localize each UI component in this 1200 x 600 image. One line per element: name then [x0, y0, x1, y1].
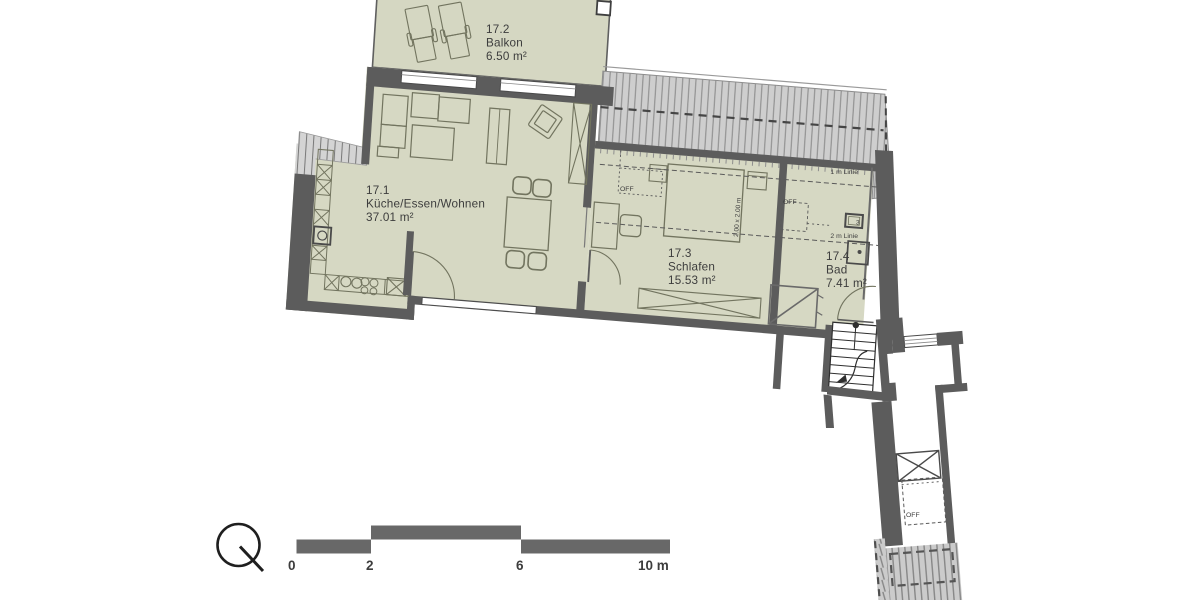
svg-text:6: 6 — [516, 558, 524, 573]
svg-text:Bad: Bad — [826, 264, 847, 277]
svg-text:Schlafen: Schlafen — [668, 261, 715, 274]
svg-text:6.50 m²: 6.50 m² — [486, 50, 527, 63]
svg-text:37.01 m²: 37.01 m² — [366, 211, 414, 224]
svg-text:10 m: 10 m — [638, 558, 669, 573]
svg-text:OFF: OFF — [783, 199, 797, 206]
svg-text:OFF: OFF — [906, 512, 920, 519]
svg-text:17.4: 17.4 — [826, 250, 850, 263]
svg-text:2: 2 — [366, 558, 374, 573]
svg-text:Balkon: Balkon — [486, 37, 523, 50]
svg-text:Küche/Essen/Wohnen: Küche/Essen/Wohnen — [366, 198, 485, 211]
svg-text:OFF: OFF — [620, 186, 634, 193]
svg-text:2 m Linie: 2 m Linie — [830, 233, 858, 240]
svg-text:17.1: 17.1 — [366, 184, 390, 197]
svg-text:7.41 m²: 7.41 m² — [826, 277, 867, 290]
svg-text:17.3: 17.3 — [668, 247, 692, 260]
svg-text:17.2: 17.2 — [486, 23, 510, 36]
svg-text:15.53 m²: 15.53 m² — [668, 274, 716, 287]
svg-text:1 m Linie: 1 m Linie — [830, 169, 858, 176]
svg-text:0: 0 — [288, 558, 296, 573]
svg-text:3: 3 — [856, 220, 860, 227]
